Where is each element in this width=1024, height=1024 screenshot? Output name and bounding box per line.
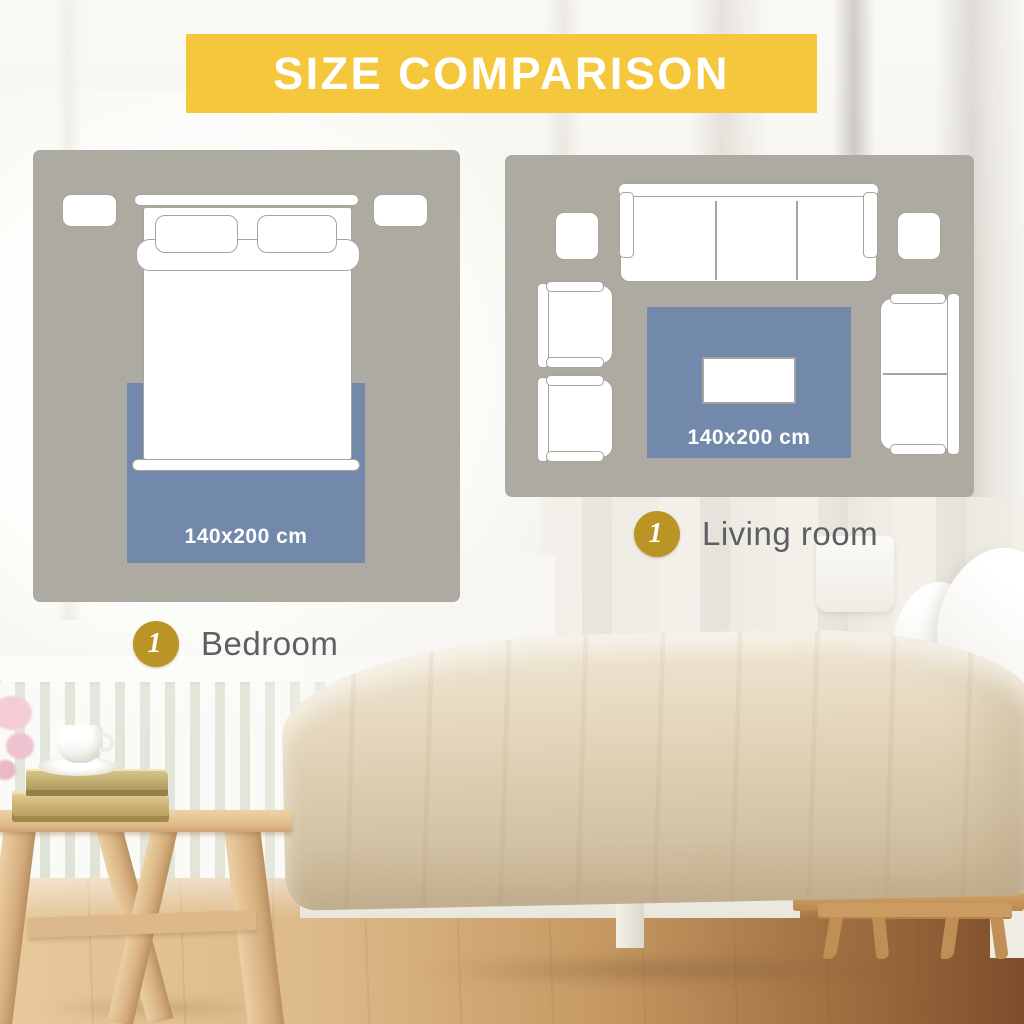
- nightstand-right: [373, 194, 428, 227]
- armchair-arm: [546, 375, 604, 386]
- bed-pillow-left: [155, 215, 238, 253]
- pink-flower: [6, 733, 34, 759]
- armchair-top-view: [537, 375, 615, 462]
- sofa-seats: [620, 193, 877, 282]
- loveseat-top-view: [878, 293, 960, 455]
- bedroom-layout-panel: 140x200 cm: [33, 150, 460, 602]
- bedroom-badge-number: 1: [148, 630, 165, 658]
- living-room-number-badge: 1: [634, 511, 680, 557]
- armchair-seat: [543, 379, 613, 458]
- living-room-rug-size-label: 140x200 cm: [688, 426, 811, 450]
- armchair-arm: [546, 281, 604, 292]
- bedroom-number-badge: 1: [133, 621, 179, 667]
- bedroom-rug-size-label: 140x200 cm: [185, 525, 308, 549]
- armchair-seat: [543, 285, 613, 364]
- sofa-top-view: [620, 185, 877, 282]
- bed-shadow: [320, 950, 1000, 990]
- loveseat-arm: [890, 293, 946, 304]
- bed-headboard: [134, 194, 359, 206]
- armchair-back: [537, 377, 549, 462]
- armchair-back: [537, 283, 549, 368]
- bedroom-legend: 1 Bedroom: [133, 621, 338, 667]
- living-room-layout-panel: 140x200 cm: [505, 155, 974, 497]
- blanket-creases: [280, 625, 1024, 911]
- living-room-legend: 1 Living room: [634, 511, 878, 557]
- armchair-arm: [546, 451, 604, 462]
- page-title: SIZE COMPARISON: [273, 48, 730, 100]
- bed-with-beige-blanket: [280, 625, 1024, 911]
- wooden-step-stool: [818, 903, 1012, 917]
- sofa-arm-right: [863, 192, 878, 258]
- size-comparison-infographic: SIZE COMPARISON 140x200 cm: [0, 0, 1024, 1024]
- side-table-left: [555, 212, 599, 260]
- sofa-back: [618, 183, 879, 197]
- coffee-table: [702, 357, 796, 404]
- sofa-seat-divider: [715, 201, 717, 280]
- armchair-arm: [546, 357, 604, 368]
- sofa-seat-divider: [796, 201, 798, 280]
- living-room-legend-label: Living room: [702, 515, 878, 553]
- bed-pillow-right: [257, 215, 337, 253]
- loveseat-seat-divider: [883, 373, 952, 375]
- nightstand-left: [62, 194, 117, 227]
- teacup: [57, 725, 103, 763]
- loveseat-back: [947, 293, 960, 455]
- title-banner: SIZE COMPARISON: [186, 34, 817, 113]
- living-room-rug: 140x200 cm: [647, 307, 851, 458]
- armchair-top-view: [537, 281, 615, 368]
- side-table-right: [897, 212, 941, 260]
- loveseat-arm: [890, 444, 946, 455]
- living-room-badge-number: 1: [649, 520, 666, 548]
- bedroom-legend-label: Bedroom: [201, 625, 338, 663]
- sofa-arm-left: [619, 192, 634, 258]
- bed-footboard: [132, 459, 360, 471]
